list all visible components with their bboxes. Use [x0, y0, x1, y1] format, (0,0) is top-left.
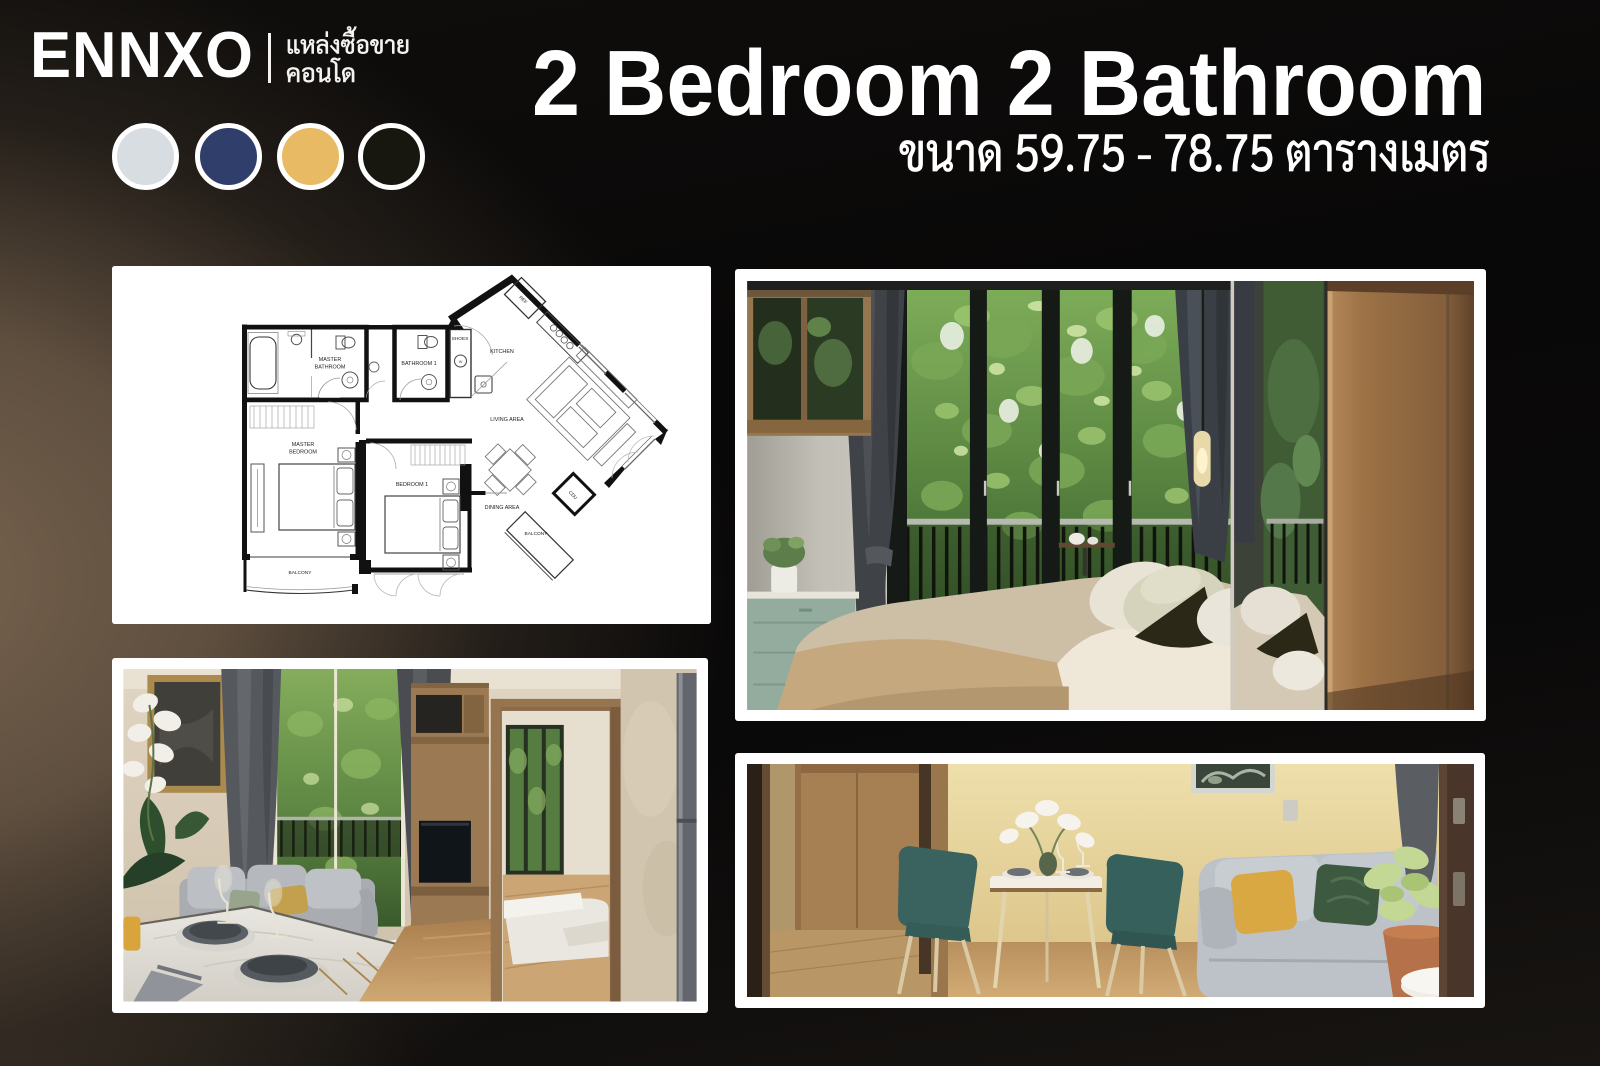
svg-text:MASTER: MASTER	[318, 357, 341, 363]
svg-text:BEDROOM 1: BEDROOM 1	[395, 482, 427, 488]
svg-text:KITCHEN: KITCHEN	[490, 349, 514, 355]
svg-text:BALCONY: BALCONY	[288, 570, 312, 576]
svg-text:BALCONY: BALCONY	[524, 531, 548, 537]
svg-text:BATHROOM: BATHROOM	[314, 365, 345, 371]
svg-text:W: W	[458, 360, 462, 364]
svg-text:LIVING AREA: LIVING AREA	[490, 417, 524, 423]
svg-text:DINING AREA: DINING AREA	[484, 505, 519, 511]
svg-text:MASTER: MASTER	[291, 442, 314, 448]
svg-text:SHOES: SHOES	[451, 336, 468, 342]
svg-text:BEDROOM: BEDROOM	[289, 450, 317, 456]
svg-text:BATHROOM 1: BATHROOM 1	[401, 361, 436, 367]
